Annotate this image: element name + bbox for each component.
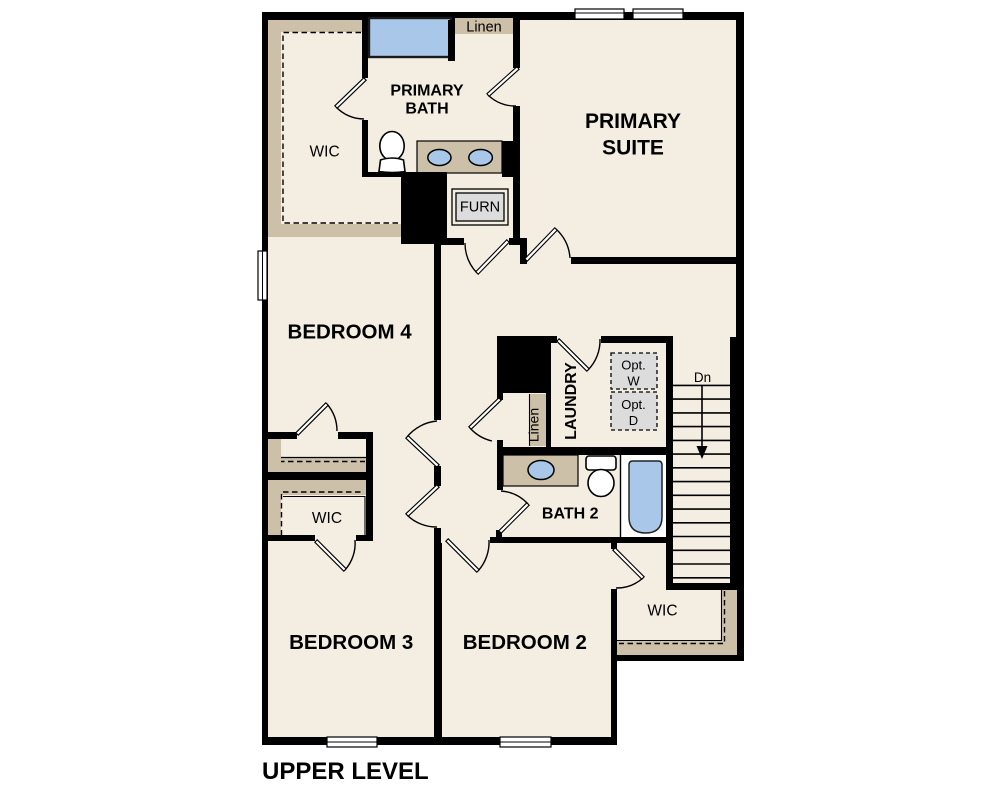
svg-text:Linen: Linen [526, 408, 542, 442]
svg-text:Linen: Linen [466, 20, 501, 36]
svg-text:Opt.: Opt. [621, 397, 646, 412]
svg-text:BATH: BATH [405, 101, 448, 118]
svg-text:BEDROOM 3: BEDROOM 3 [289, 631, 413, 654]
svg-text:BEDROOM 4: BEDROOM 4 [288, 321, 413, 344]
svg-text:FURN: FURN [460, 200, 500, 216]
svg-text:LAUNDRY: LAUNDRY [563, 362, 580, 440]
svg-text:PRIMARY: PRIMARY [585, 110, 681, 133]
svg-text:Dn: Dn [694, 370, 711, 385]
svg-text:D: D [629, 413, 638, 428]
svg-text:BATH 2: BATH 2 [542, 506, 599, 523]
svg-text:UPPER LEVEL: UPPER LEVEL [262, 758, 429, 785]
svg-text:SUITE: SUITE [602, 137, 664, 160]
svg-text:PRIMARY: PRIMARY [390, 83, 464, 100]
svg-text:W: W [627, 374, 640, 389]
svg-text:WIC: WIC [310, 144, 340, 161]
svg-text:WIC: WIC [647, 603, 677, 620]
svg-text:BEDROOM 2: BEDROOM 2 [463, 631, 587, 654]
svg-text:Opt.: Opt. [621, 358, 646, 373]
svg-text:WIC: WIC [312, 510, 342, 527]
